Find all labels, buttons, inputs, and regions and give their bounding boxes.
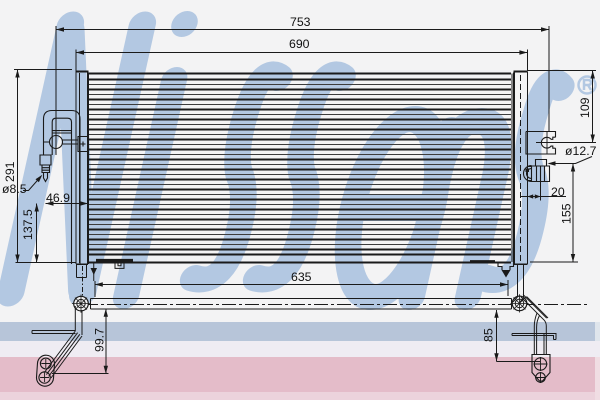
svg-text:109: 109	[578, 97, 592, 118]
svg-text:690: 690	[289, 37, 310, 51]
svg-text:753: 753	[290, 15, 311, 29]
svg-text:635: 635	[291, 270, 312, 284]
svg-text:155: 155	[560, 203, 574, 224]
svg-text:291: 291	[3, 161, 17, 182]
svg-text:99.7: 99.7	[93, 328, 107, 352]
svg-text:20: 20	[551, 185, 565, 199]
svg-text:85: 85	[482, 328, 496, 342]
svg-text:46.9: 46.9	[46, 191, 70, 205]
svg-text:137.5: 137.5	[21, 209, 35, 240]
svg-text:ø8.5: ø8.5	[2, 182, 27, 196]
svg-text:ø12.7: ø12.7	[565, 144, 597, 158]
